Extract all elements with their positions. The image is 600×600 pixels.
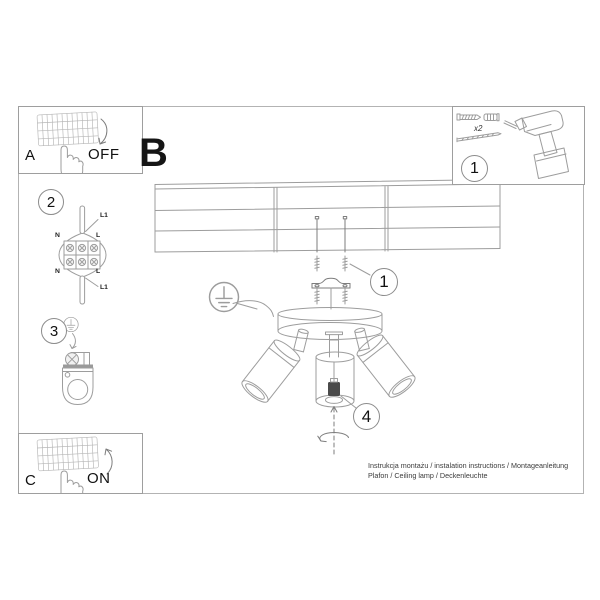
panel-hardware-kit: x2 1 <box>452 106 585 185</box>
main-diagram <box>0 0 600 600</box>
ground-symbol-icon <box>210 283 239 312</box>
gu10-socket-icon <box>328 382 340 396</box>
rotation-arrow-icon <box>318 407 349 458</box>
switch-off-art <box>19 107 142 173</box>
long-screw-icon <box>457 133 501 142</box>
pressing-hand-icon <box>61 146 83 173</box>
step-4-badge: 4 <box>353 403 380 430</box>
drill-icon <box>504 111 569 179</box>
wiring-n-top-label: N <box>55 232 60 239</box>
light-switch-icon <box>37 112 99 146</box>
panel-switch-on: C ON <box>18 433 143 494</box>
wiring-l1-bottom-label: L1 <box>100 284 108 291</box>
on-label: ON <box>87 470 111 487</box>
x2-label: x2 <box>474 124 482 133</box>
wiring-l-bottom-label: L <box>96 268 100 275</box>
step-1-mount-badge: 1 <box>370 268 398 296</box>
wiring-l1-top-label: L1 <box>100 212 108 219</box>
ground-terminal-art <box>63 317 94 404</box>
panel-a-label: A <box>25 147 35 164</box>
ceiling-panels-icon <box>155 180 500 253</box>
arrow-down-icon <box>99 119 107 144</box>
swivel-joint-left <box>294 328 309 352</box>
instruction-sheet: { "labels": { "panel_a": "A", "panel_b":… <box>0 0 600 600</box>
wall-plug-and-screw-icon <box>457 114 499 121</box>
footer-text: Instrukcja montażu / instalation instruc… <box>368 461 568 480</box>
wiring-n-bottom-label: N <box>55 268 60 275</box>
step-3-badge: 3 <box>41 318 67 344</box>
step1-pointer-line <box>350 264 370 275</box>
stem-center <box>326 332 343 357</box>
terminal-block-icon <box>59 206 106 304</box>
spotlight-left-icon <box>239 337 302 406</box>
off-label: OFF <box>88 146 120 163</box>
panel-switch-off: A OFF <box>18 106 143 174</box>
ground-pointer-line <box>238 304 258 310</box>
footer-line-1: Instrukcja montażu / instalation instruc… <box>368 461 568 471</box>
switch-on-art <box>19 434 142 493</box>
spotlight-right-icon <box>355 332 418 401</box>
step-2-badge: 2 <box>38 189 64 215</box>
pressing-hand-icon <box>61 471 83 493</box>
light-switch-icon <box>37 437 99 471</box>
wiring-l-top-label: L <box>96 232 100 239</box>
power-wire <box>233 301 274 317</box>
step-1-kit-badge: 1 <box>461 155 488 182</box>
panel-c-label: C <box>25 472 36 489</box>
footer-line-2: Plafon / Ceiling lamp / Deckenleuchte <box>368 471 568 481</box>
section-b-label: B <box>139 133 168 173</box>
mounting-bracket-icon <box>312 278 350 288</box>
spotlight-center-glass <box>316 352 354 407</box>
